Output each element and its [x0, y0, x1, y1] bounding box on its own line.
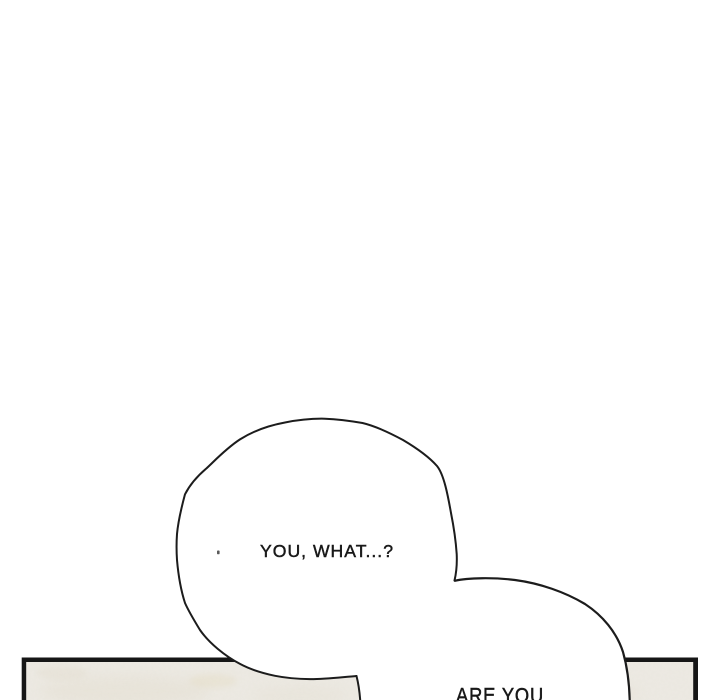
svg-text:YOU, WHAT...?: YOU, WHAT...? [260, 541, 394, 561]
svg-text:ARE YOU...: ARE YOU... [456, 685, 562, 700]
